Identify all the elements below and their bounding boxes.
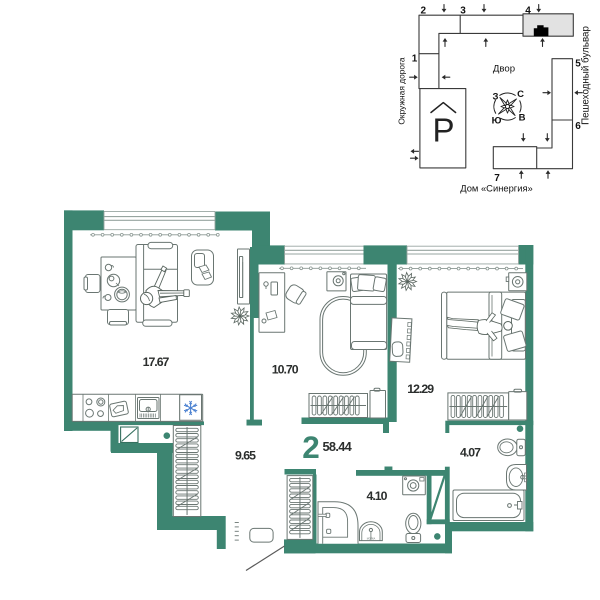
svg-text:Окружная дорога: Окружная дорога bbox=[397, 57, 407, 125]
svg-text:3: 3 bbox=[460, 6, 466, 17]
svg-text:4.10: 4.10 bbox=[367, 489, 388, 503]
svg-text:17.67: 17.67 bbox=[143, 355, 170, 369]
svg-text:Двор: Двор bbox=[493, 64, 515, 75]
svg-text:С: С bbox=[517, 89, 524, 100]
svg-text:Ю: Ю bbox=[492, 116, 502, 127]
svg-text:Пешеходный бульвар: Пешеходный бульвар bbox=[581, 26, 592, 125]
svg-text:9.65: 9.65 bbox=[235, 449, 256, 463]
svg-text:10.70: 10.70 bbox=[272, 363, 299, 377]
svg-text:58.44: 58.44 bbox=[323, 439, 353, 454]
svg-text:МОЙКА: МОЙКА bbox=[367, 538, 376, 541]
svg-text:4.07: 4.07 bbox=[460, 446, 481, 460]
svg-text:P: P bbox=[432, 112, 454, 149]
svg-text:З: З bbox=[493, 92, 499, 103]
svg-text:4: 4 bbox=[525, 6, 531, 17]
svg-text:12.29: 12.29 bbox=[407, 382, 434, 396]
svg-text:1: 1 bbox=[412, 54, 418, 65]
svg-text:2: 2 bbox=[302, 429, 320, 465]
svg-text:Дом «Синергия»: Дом «Синергия» bbox=[460, 183, 533, 194]
svg-text:2: 2 bbox=[421, 6, 427, 17]
svg-text:В: В bbox=[519, 113, 526, 124]
